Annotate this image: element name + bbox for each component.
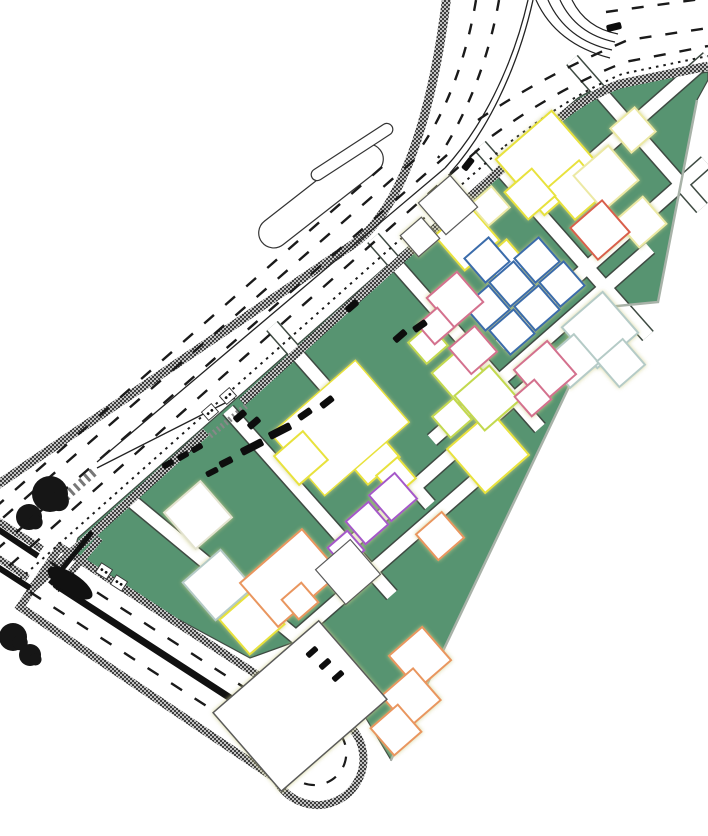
- tree-canopy: [29, 653, 41, 665]
- edge-line: [560, 0, 615, 42]
- tree-canopy: [49, 491, 69, 511]
- lane-dash-line: [606, 0, 708, 12]
- site-plan-svg: [0, 0, 708, 836]
- site-plan-drawing: [0, 0, 708, 836]
- edge-line: [536, 0, 610, 58]
- tree-canopy: [28, 515, 42, 529]
- vehicle: [606, 22, 622, 32]
- edge-line: [548, 0, 612, 50]
- vehicle: [461, 156, 475, 171]
